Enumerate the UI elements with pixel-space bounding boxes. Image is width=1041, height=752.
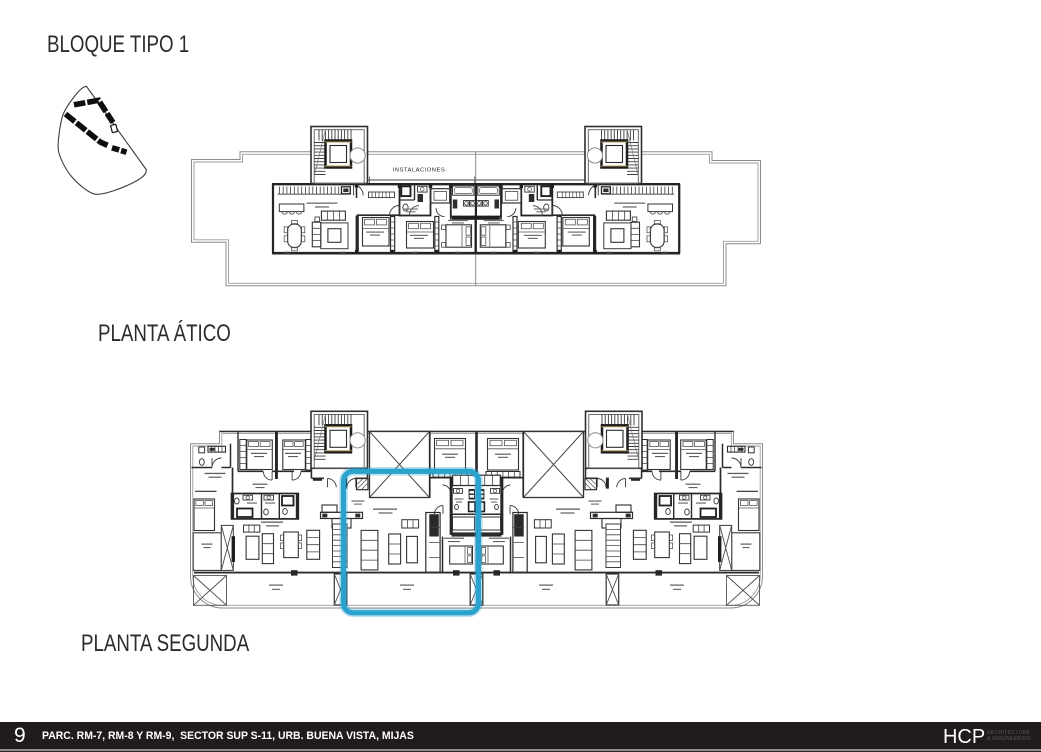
svg-text:INSTALACIONES: INSTALACIONES <box>393 168 445 174</box>
